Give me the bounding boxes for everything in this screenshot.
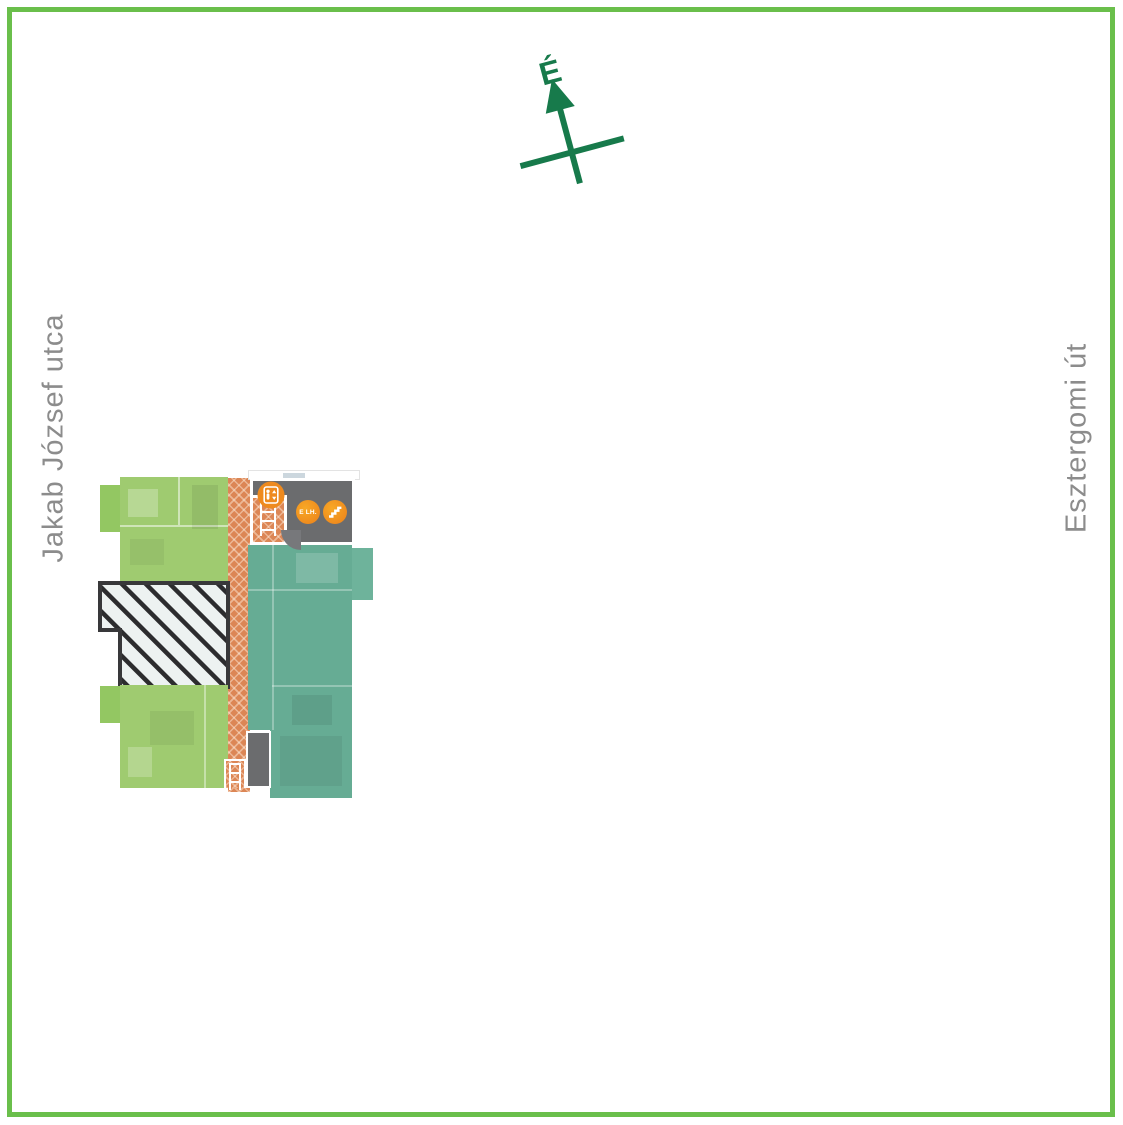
room-divider bbox=[272, 545, 274, 730]
furniture-hint bbox=[130, 539, 164, 565]
balcony-green-upper bbox=[100, 485, 120, 532]
furniture-hint bbox=[150, 711, 194, 745]
floor-plan: E LH. bbox=[100, 470, 385, 805]
stair-ladder-icon bbox=[229, 763, 241, 790]
apartment-teal[interactable] bbox=[248, 545, 352, 730]
furniture-hint bbox=[192, 485, 218, 529]
elevator-lobby-badge-label: E LH. bbox=[299, 509, 317, 516]
balcony-teal bbox=[352, 548, 373, 600]
apartment-green-lower[interactable] bbox=[120, 685, 228, 788]
stairs-glyph bbox=[326, 503, 344, 521]
elevator-icon bbox=[257, 481, 285, 509]
apartment-green-upper[interactable] bbox=[120, 477, 228, 583]
street-label-left: Jakab József utca bbox=[38, 313, 71, 562]
furniture-hint bbox=[128, 747, 152, 777]
stairs-icon bbox=[323, 500, 347, 524]
street-label-right: Esztergomi út bbox=[1061, 343, 1094, 533]
hatched-unit-outline bbox=[100, 583, 228, 687]
furniture-hint bbox=[292, 695, 332, 725]
north-compass: É bbox=[492, 35, 642, 205]
north-arrow-icon: É bbox=[494, 41, 632, 197]
room-divider bbox=[272, 685, 352, 687]
apartment-teal-lower[interactable] bbox=[270, 730, 352, 798]
stairwell bbox=[246, 731, 271, 788]
stair-ladder-box bbox=[224, 759, 246, 788]
furniture-hint bbox=[128, 489, 158, 517]
furniture-hint bbox=[280, 736, 342, 786]
site-plan-page: Jakab József utca Esztergomi út É bbox=[0, 0, 1123, 1125]
balcony-green-lower bbox=[100, 686, 120, 723]
room-divider bbox=[178, 477, 180, 525]
room-divider bbox=[204, 685, 206, 788]
apartment-hatched[interactable] bbox=[98, 581, 232, 691]
room-divider bbox=[248, 589, 352, 591]
room-divider bbox=[120, 525, 228, 527]
north-label: É bbox=[535, 52, 565, 92]
furniture-hint bbox=[296, 553, 338, 583]
elevator-lobby-badge: E LH. bbox=[296, 500, 320, 524]
